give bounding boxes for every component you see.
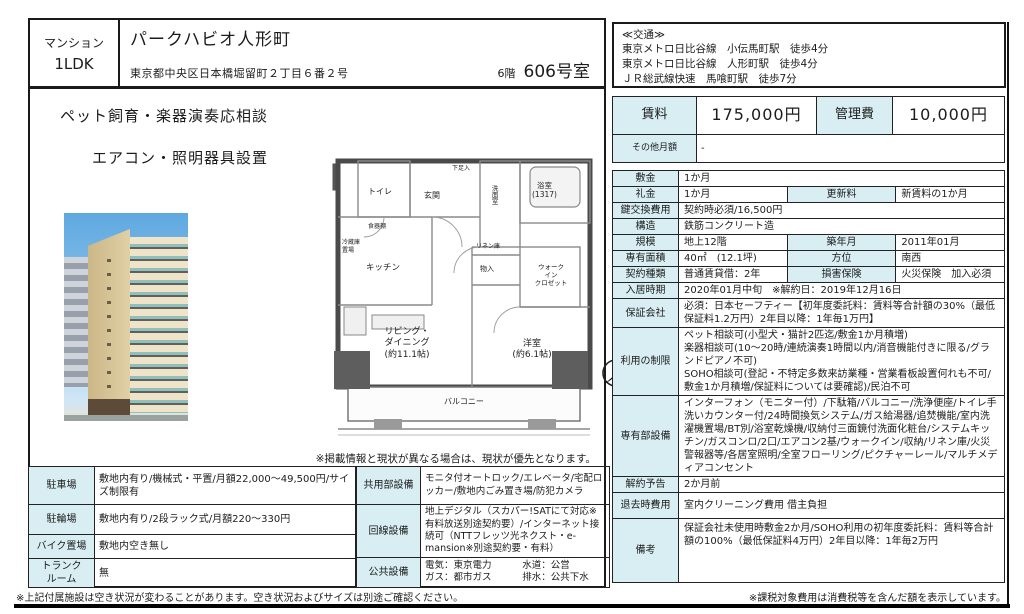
table-row: 共用部設備 モニタ付オートロック/エレベータ/宅配ロッカー/敷地内ごみ置き場/防… [357, 467, 610, 505]
scale-value: 地上12階 [679, 235, 788, 251]
common-equip-label: 共用部設備 [357, 467, 421, 505]
table-row: 備考 保証会社未使用時敷金2か月/SOHO利用の初年度委託料：賃料等合計額の10… [613, 519, 1005, 583]
trunk-value: 無 [95, 559, 356, 588]
table-row: 駐輪場 敷地内有り/2段ラック式/月額220～330円 [29, 505, 356, 535]
table-row: その他月額 - [613, 135, 1005, 163]
street [64, 415, 188, 421]
cancellation-notice-value: 2か月前 [679, 477, 1005, 493]
bicycle-value: 敷地内有り/2段ラック式/月額220～330円 [95, 505, 356, 535]
public-utilities-left: 電気：東京電力 ガス：都市ガス [425, 560, 522, 585]
floorplan-label-linen: リネン庫 [476, 243, 500, 251]
direction-label: 方位 [787, 251, 896, 267]
deposit-value: 1か月 [679, 171, 1005, 187]
table-row: 契約種類 普通賃貸借：2年 損害保険 火災保険 加入必須 [613, 267, 1005, 283]
floorplan-label-wash: 洗面室 [490, 185, 498, 205]
key-exchange-label: 鍵交換費用 [613, 203, 679, 219]
structure-label: 構造 [613, 219, 679, 235]
table-row: 利用の制限 ペット相談可(小型犬・猫計2匹迄/敷金1か月積増) 楽器相談可(10… [613, 328, 1005, 396]
facility-tables: 駐車場 敷地内有り/機械式・平置/月額22,000～49,500円/サイズ制限有… [28, 466, 610, 588]
key-money-value: 1か月 [679, 187, 788, 203]
management-fee-label: 管理費 [817, 97, 893, 135]
floorplan-label-mono: 物入 [480, 265, 494, 274]
detail-table: 敷金 1か月 礼金 1か月 更新料 新賃料の1か月 鍵交換費用 契約時必須/16… [612, 170, 1005, 583]
table-row: 構造 鉄筋コンクリート造 [613, 219, 1005, 235]
floorplan-label-kitchen: キッチン [366, 263, 400, 274]
property-category-cell: マンション 1LDK [30, 20, 120, 86]
unit-equipment-label: 専有部設備 [613, 396, 679, 477]
table-row: 敷金 1か月 [613, 171, 1005, 187]
background-building [64, 257, 90, 387]
table-row: 解約予告 2か月前 [613, 477, 1005, 493]
property-address: 東京都中央区日本橋堀留町２丁目６番２号 [130, 65, 349, 81]
area-label: 専有面積 [613, 251, 679, 267]
header-box: マンション 1LDK パークハビオ人形町 東京都中央区日本橋堀留町２丁目６番２号… [28, 18, 606, 88]
move-in-label: 入居時期 [613, 283, 679, 299]
left-panel: ペット飼育・楽器演奏応相談 エアコン・照明器具設置 [28, 88, 606, 588]
floorplan: トイレ 玄関 下足入 洗面室 浴室 (1317) キッチン 食器棚 冷蔵庫 置場… [332, 155, 604, 455]
access-heading: ≪交通≫ [622, 27, 996, 42]
floorplan-label-balcony: バルコニー [444, 397, 484, 407]
rent-table: 賃料 175,000円 管理費 10,000円 その他月額 - [612, 96, 1005, 163]
floorplan-label-genkan: 玄関 [424, 191, 440, 201]
property-floor: 6階 [498, 65, 516, 81]
access-line-3: ＪＲ総武線快速 馬喰町駅 徒歩7分 [622, 72, 996, 87]
contract-type-value: 普通賃貸借：2年 [679, 267, 788, 283]
parking-label: 駐車場 [29, 467, 95, 505]
table-row: 賃料 175,000円 管理費 10,000円 [613, 97, 1005, 135]
move-out-cost-label: 退去時費用 [613, 493, 679, 519]
built-date-value: 2011年01月 [896, 235, 1005, 251]
feature-pets-instruments: ペット飼育・楽器演奏応相談 [60, 105, 268, 126]
table-row: 専有部設備 インターフォン（モニター付）/下駄箱/バルコニー/洗浄便座/トイレ手… [613, 396, 1005, 477]
usage-restriction-label: 利用の制限 [613, 328, 679, 396]
common-equip-value: モニタ付オートロック/エレベータ/宅配ロッカー/敷地内ごみ置き場/防犯カメラ [421, 467, 610, 505]
remarks-value: 保証会社未使用時敷金2か月/SOHO利用の初年度委託料：賃料等合計額の100%（… [679, 519, 1005, 583]
rent-label: 賃料 [613, 97, 697, 135]
insurance-value: 火災保険 加入必須 [896, 267, 1005, 283]
direction-value: 南西 [896, 251, 1005, 267]
key-money-label: 礼金 [613, 187, 679, 203]
bike-label: バイク置場 [29, 535, 95, 559]
table-row: 規模 地上12階 築年月 2011年01月 [613, 235, 1005, 251]
table-row: 鍵交換費用 契約時必須/16,500円 [613, 203, 1005, 219]
line-equip-label: 回線設備 [357, 505, 421, 558]
parking-value: 敷地内有り/機械式・平置/月額22,000～49,500円/サイズ制限有 [95, 467, 356, 505]
property-category: マンション [44, 34, 104, 51]
floorplan-label-bedroom: 洋室 (約6.1帖) [494, 339, 570, 362]
other-monthly-label: その他月額 [613, 135, 697, 163]
table-row: 退去時費用 室内クリーニング費用 借主負担 [613, 493, 1005, 519]
floorplan-label-living: リビング・ ダイニング (約11.1帖) [362, 327, 452, 361]
renewal-fee-label: 更新料 [787, 187, 896, 203]
floorplan-label-wic: ウォーク イン クロゼット [528, 263, 574, 287]
table-row: 保証会社 必須：日本セーフティー【初年度委託料：賃料等合計額の30%（最低保証料… [613, 299, 1005, 328]
property-title: パークハビオ人形町 [130, 25, 594, 50]
floorplan-label-shoe: 下足入 [452, 165, 470, 173]
contract-type-label: 契約種類 [613, 267, 679, 283]
usage-restriction-value: ペット相談可(小型犬・猫計2匹迄/敷金1か月積増) 楽器相談可(10～20時/連… [679, 328, 1005, 396]
area-value: 40㎡ (12.1坪) [679, 251, 788, 267]
table-row: トランク ルーム 無 [29, 559, 356, 588]
rent-value: 175,000円 [697, 97, 817, 135]
table-row: 回線設備 地上デジタル（スカパー!SATにて対応※有料放送別途契約要）/インター… [357, 505, 610, 558]
table-row: 公共設備 電気：東京電力 ガス：都市ガス 水道：公営 排水：公共下水 [357, 557, 610, 587]
footnote-tax: ※課税対象費用は消費税等を含んだ額を表示しています。 [749, 589, 1006, 604]
scale-label: 規模 [613, 235, 679, 251]
guarantor-company-label: 保証会社 [613, 299, 679, 328]
unit-equipment-value: インターフォン（モニター付）/下駄箱/バルコニー/洗浄便座/トイレ手洗いカウンタ… [679, 396, 1005, 477]
header-main: パークハビオ人形町 東京都中央区日本橋堀留町２丁目６番２号 6階 606号室 [120, 20, 604, 86]
access-line-1: 東京メトロ日比谷線 小伝馬町駅 徒歩4分 [622, 42, 996, 57]
floorplan-note: ※掲載情報と現状が異なる場合は、現状が優先となります。 [316, 451, 596, 466]
property-layout: 1LDK [54, 55, 93, 73]
access-line-2: 東京メトロ日比谷線 人形町駅 徒歩4分 [622, 57, 996, 72]
bicycle-label: 駐輪場 [29, 505, 95, 535]
move-in-value: 2020年01月中旬 ※解約日：2019年12月16日 [679, 283, 1005, 299]
key-exchange-value: 契約時必須/16,500円 [679, 203, 1005, 219]
property-room: 606号室 [524, 57, 590, 82]
building-photo [64, 213, 188, 421]
structure-value: 鉄筋コンクリート造 [679, 219, 1005, 235]
guarantor-company-value: 必須：日本セーフティー【初年度委託料：賃料等合計額の30%（最低保証料1.2万円… [679, 299, 1005, 328]
table-row: バイク置場 敷地内空き無し [29, 535, 356, 559]
other-monthly-value: - [697, 135, 1005, 163]
table-row: 礼金 1か月 更新料 新賃料の1か月 [613, 187, 1005, 203]
floorplan-label-bath: 浴室 (1317) [532, 181, 557, 200]
building-side-wall [88, 229, 130, 417]
trunk-label: トランク ルーム [29, 559, 95, 588]
common-equip-table: 共用部設備 モニタ付オートロック/エレベータ/宅配ロッカー/敷地内ごみ置き場/防… [356, 466, 610, 588]
access-box: ≪交通≫ 東京メトロ日比谷線 小伝馬町駅 徒歩4分 東京メトロ日比谷線 人形町駅… [612, 22, 1006, 88]
footnote-facilities: ※上記付属施設は空き状況が変わることがあります。空き状況およびサイズは別途ご確認… [16, 589, 463, 604]
bike-value: 敷地内空き無し [95, 535, 356, 559]
management-fee-value: 10,000円 [893, 97, 1005, 135]
page-right-border [1007, 22, 1009, 604]
floorplan-label-dish: 食器棚 [368, 223, 386, 231]
floorplan-drawing [332, 155, 604, 455]
table-row: 専有面積 40㎡ (12.1坪) 方位 南西 [613, 251, 1005, 267]
insurance-label: 損害保険 [787, 267, 896, 283]
renewal-fee-value: 新賃料の1か月 [896, 187, 1005, 203]
remarks-label: 備考 [613, 519, 679, 583]
table-row: 駐車場 敷地内有り/機械式・平置/月額22,000～49,500円/サイズ制限有 [29, 467, 356, 505]
table-row: 入居時期 2020年01月中旬 ※解約日：2019年12月16日 [613, 283, 1005, 299]
property-flyer: マンション 1LDK パークハビオ人形町 東京都中央区日本橋堀留町２丁目６番２号… [0, 0, 1024, 614]
move-out-cost-value: 室内クリーニング費用 借主負担 [679, 493, 1005, 519]
line-equip-value: 地上デジタル（スカパー!SATにて対応※有料放送別途契約要）/インターネット接続… [421, 505, 610, 558]
feature-aircon-lighting: エアコン・照明器具設置 [92, 147, 268, 168]
building-balcony-face [130, 237, 188, 413]
page-bottom-rule [14, 604, 1010, 608]
floorplan-label-toilet: トイレ [368, 187, 392, 197]
deposit-label: 敷金 [613, 171, 679, 187]
parking-table: 駐車場 敷地内有り/機械式・平置/月額22,000～49,500円/サイズ制限有… [28, 466, 356, 588]
public-equip-label: 公共設備 [357, 557, 421, 587]
built-date-label: 築年月 [787, 235, 896, 251]
public-utilities-right: 水道：公営 排水：公共下水 [522, 560, 605, 585]
cancellation-notice-label: 解約予告 [613, 477, 679, 493]
floorplan-label-fridge: 冷蔵庫 置場 [342, 239, 360, 254]
